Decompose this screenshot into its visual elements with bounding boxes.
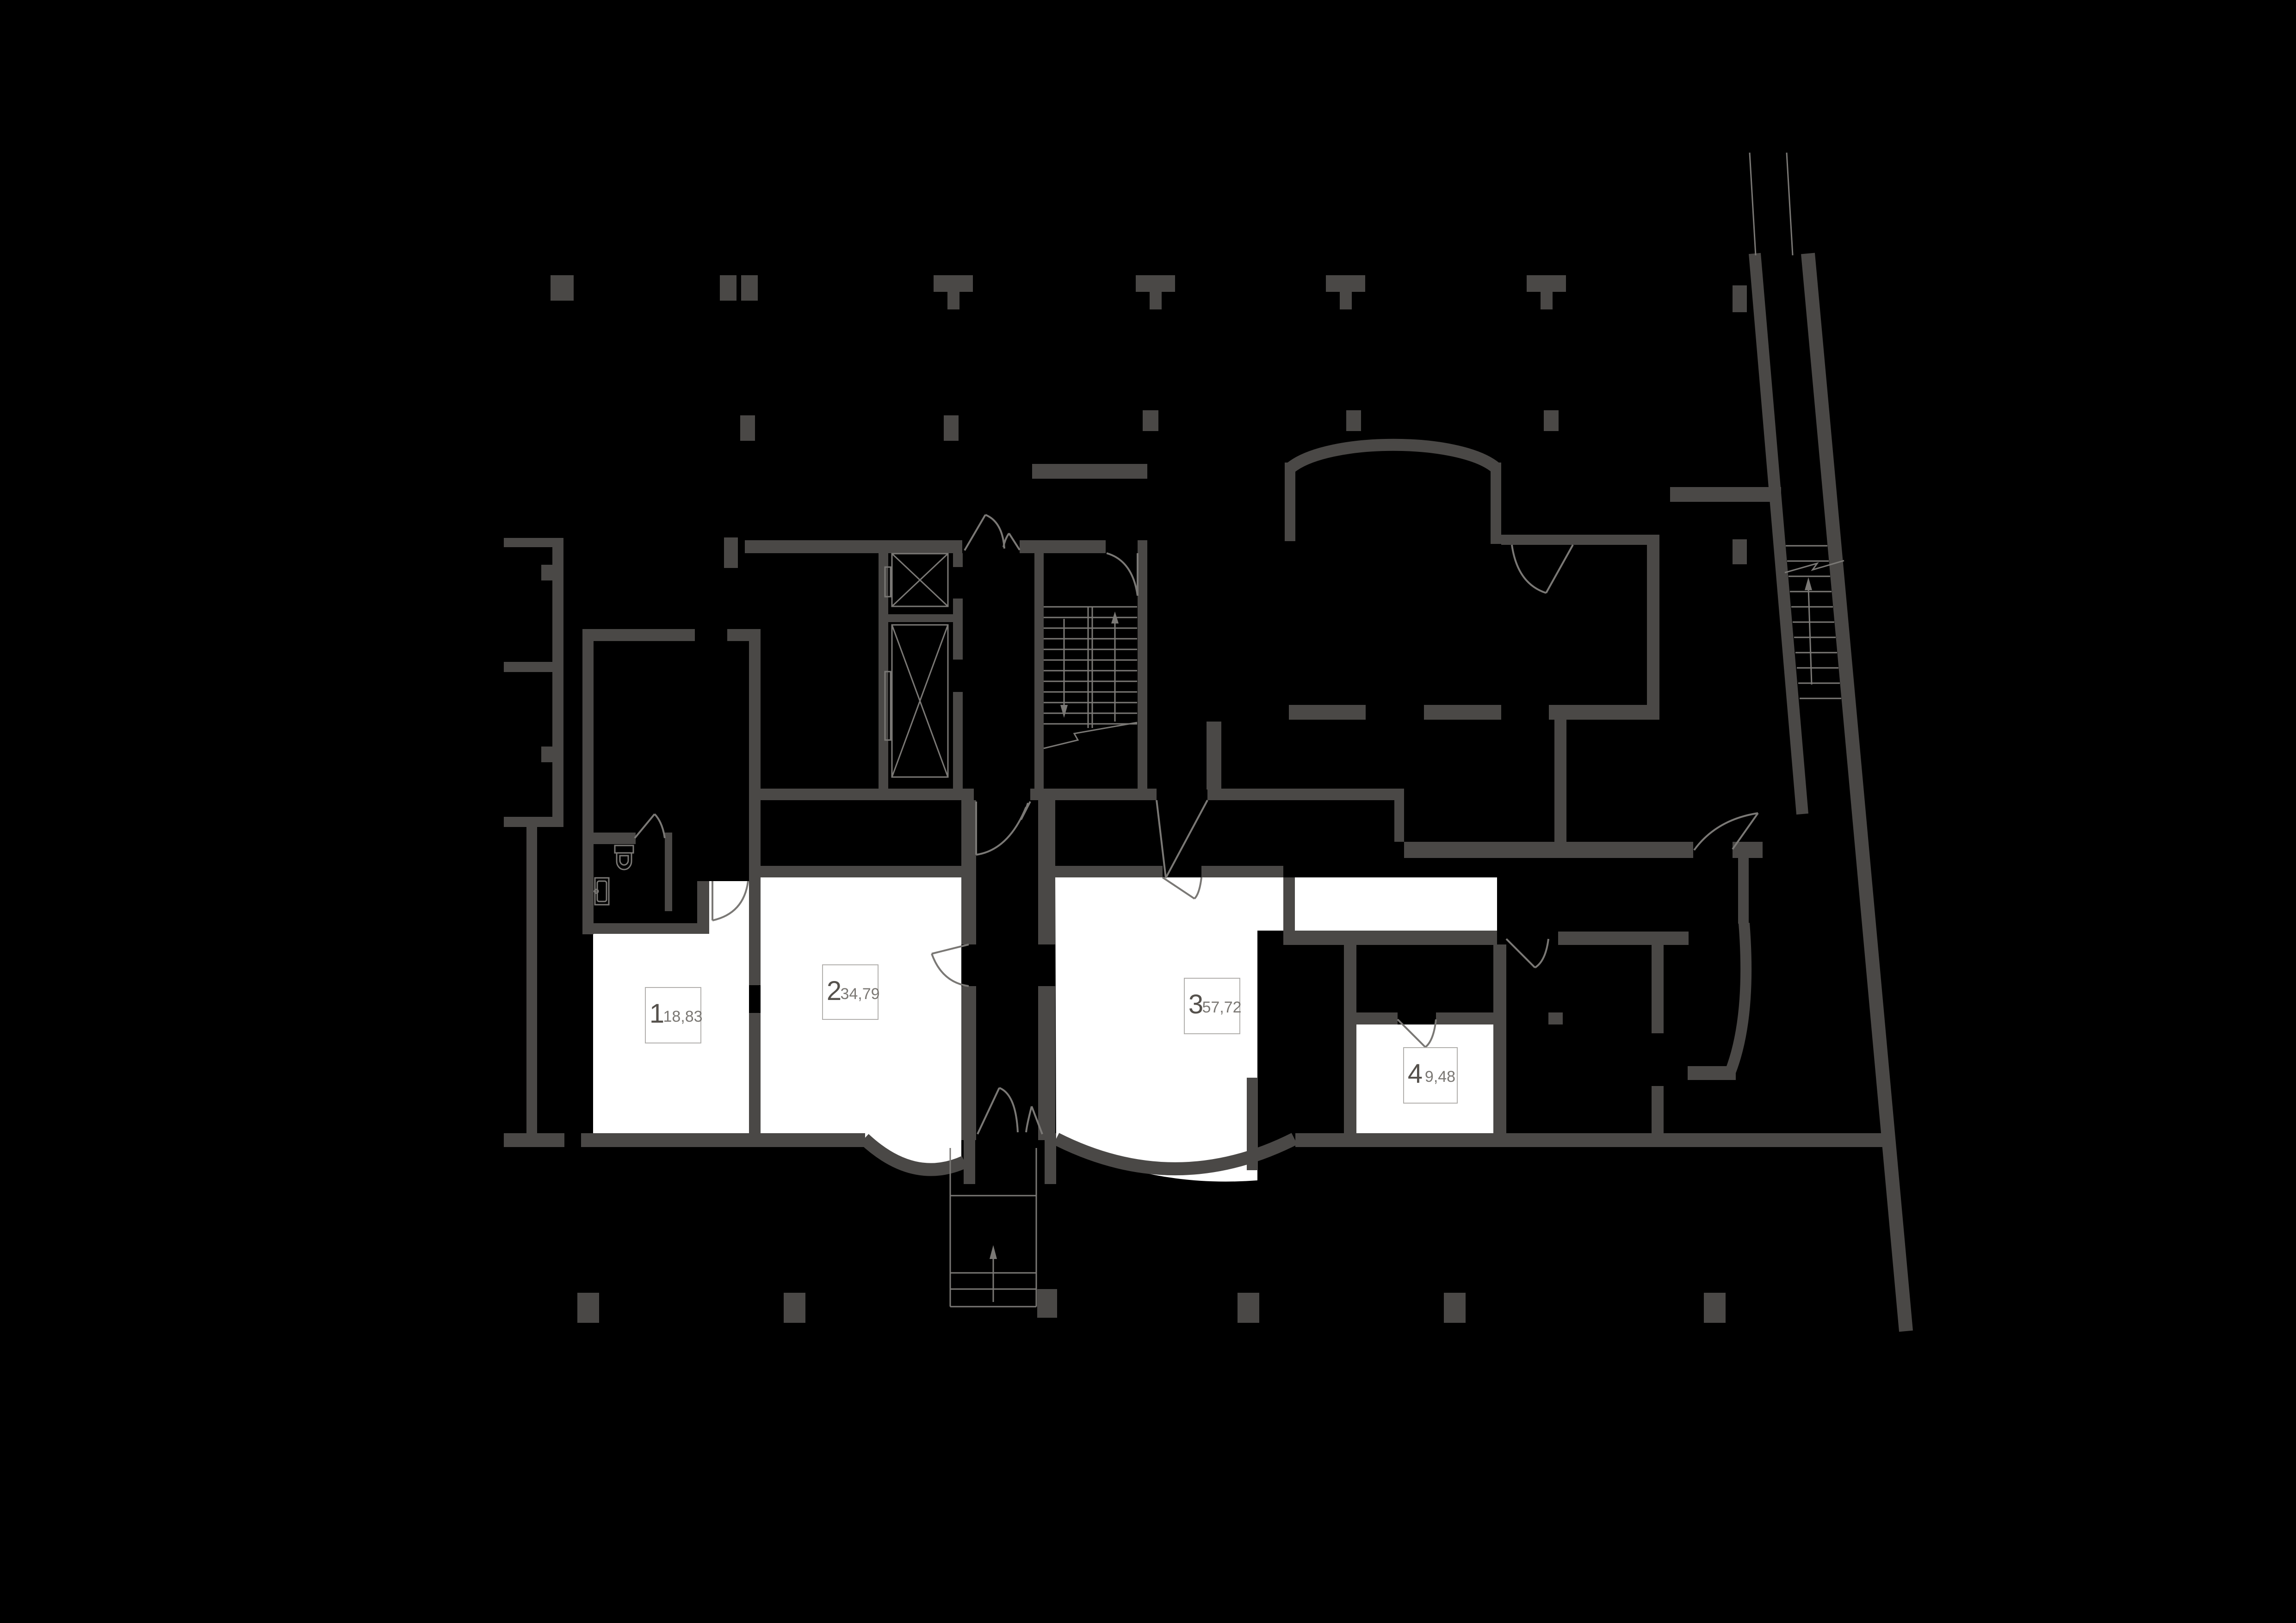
column xyxy=(1444,1293,1466,1323)
door-arc-stair-side xyxy=(1157,800,1207,878)
up-arrow-icon xyxy=(1805,577,1812,590)
door-arc-entrance-double xyxy=(978,1088,1042,1134)
column xyxy=(577,1293,599,1323)
column xyxy=(1733,539,1747,564)
inner-diagonal-wall xyxy=(1755,253,1802,814)
unit-1-number: 1 xyxy=(650,999,664,1029)
column xyxy=(740,415,755,441)
column xyxy=(1544,410,1559,431)
unit-2-room xyxy=(761,877,961,1166)
up-arrow-icon xyxy=(990,1245,997,1259)
right-block-curve xyxy=(1730,923,1746,1072)
elevator-shaft-2 xyxy=(885,625,948,777)
bathroom-fixtures xyxy=(594,845,633,905)
curved-walls xyxy=(864,445,1746,1170)
unit-1-area: 18,83 xyxy=(663,1008,702,1025)
door-arc-bathroom xyxy=(635,814,665,838)
column xyxy=(1704,1293,1726,1323)
door-arc-stair-top xyxy=(1107,553,1138,596)
diagonal-walls xyxy=(1750,153,1906,1331)
t-column xyxy=(1527,275,1566,309)
door-arc-bay xyxy=(1512,545,1573,593)
unit-4-number: 4 xyxy=(1408,1059,1423,1089)
column xyxy=(1238,1293,1259,1323)
unit-3-number: 3 xyxy=(1188,989,1203,1019)
unit-3-label: 3 57,72 xyxy=(1184,978,1242,1034)
t-column xyxy=(1136,275,1175,309)
door-arc-right-corridor xyxy=(1506,939,1548,968)
unit-2-label: 2 34,79 xyxy=(823,965,880,1019)
unit-1-label: 1 18,83 xyxy=(645,987,703,1043)
unit-4-label: 4 9,48 xyxy=(1404,1048,1457,1103)
floor-plan-canvas: 1 18,83 2 34,79 3 57,72 4 9,48 xyxy=(0,0,2296,1623)
unit-3-area: 57,72 xyxy=(1202,999,1241,1016)
column xyxy=(741,275,758,301)
unit-4-area: 9,48 xyxy=(1425,1068,1455,1086)
elevator-bank xyxy=(885,554,948,777)
column xyxy=(1346,410,1361,431)
outer-diagonal-wall xyxy=(1808,253,1906,1331)
site-line xyxy=(1787,153,1793,255)
unit-2-number: 2 xyxy=(827,976,842,1006)
column xyxy=(1733,285,1747,312)
porch-column xyxy=(1037,1289,1057,1318)
column xyxy=(551,275,574,301)
t-column xyxy=(934,275,973,309)
elevator-shaft-1 xyxy=(885,554,948,606)
unit-2-area: 34,79 xyxy=(840,985,879,1003)
site-line xyxy=(1750,153,1756,255)
column xyxy=(1143,410,1158,431)
sink-icon xyxy=(594,878,609,905)
door-arc-lobby-double xyxy=(965,515,1020,550)
column xyxy=(720,275,736,301)
stair-treads-icon xyxy=(1044,607,1137,748)
floor-plan: 1 18,83 2 34,79 3 57,72 4 9,48 xyxy=(0,0,2296,1623)
column xyxy=(784,1293,805,1323)
door-arc-vestibule xyxy=(976,802,1030,855)
t-column xyxy=(1326,275,1365,309)
toilet-icon xyxy=(615,845,633,870)
core-staircase xyxy=(1044,607,1137,748)
bay-arc-wall xyxy=(1290,445,1496,468)
down-arrow-icon xyxy=(1060,705,1068,718)
column xyxy=(944,415,959,441)
